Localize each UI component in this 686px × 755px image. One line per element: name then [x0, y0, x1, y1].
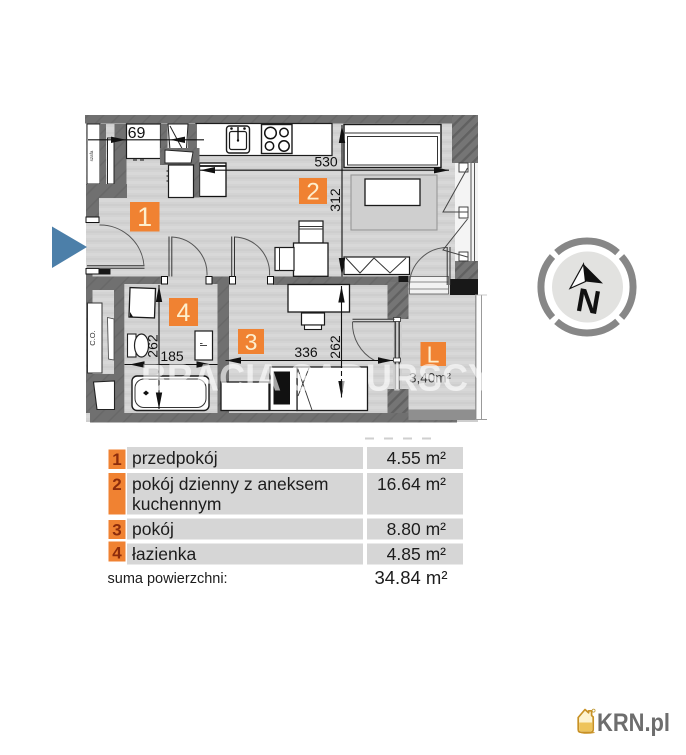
svg-text:2: 2 [112, 475, 121, 494]
svg-text:3: 3 [112, 521, 121, 540]
svg-text:pokój: pokój [132, 519, 174, 539]
svg-text:1: 1 [112, 450, 121, 469]
svg-text:262: 262 [145, 334, 161, 358]
svg-text:2: 2 [306, 179, 319, 206]
svg-text:suma powierzchni:: suma powierzchni: [108, 571, 228, 587]
svg-text:4: 4 [177, 299, 191, 327]
svg-text:BRACIA SADURSCY: BRACIA SADURSCY [141, 358, 492, 400]
svg-text:szafa: szafa [89, 150, 94, 161]
svg-text:262: 262 [327, 335, 343, 359]
svg-text:4: 4 [112, 544, 122, 563]
svg-text:4.85 m²: 4.85 m² [387, 544, 446, 564]
svg-text:KRN.pl: KRN.pl [597, 709, 670, 737]
svg-text:16.64 m²: 16.64 m² [377, 474, 446, 494]
svg-text:pokój dzienny z aneksem: pokój dzienny z aneksem [132, 474, 329, 494]
svg-text:34.84 m²: 34.84 m² [374, 567, 447, 588]
svg-text:4.55 m²: 4.55 m² [387, 448, 446, 468]
svg-text:kuchennym: kuchennym [132, 494, 222, 514]
svg-text:1: 1 [137, 202, 152, 232]
svg-text:przedpokój: przedpokój [132, 448, 218, 468]
svg-text:3: 3 [245, 329, 258, 355]
svg-text:530: 530 [314, 154, 338, 170]
svg-text:C.O.: C.O. [88, 330, 97, 345]
svg-text:łazienka: łazienka [132, 544, 196, 564]
svg-text:8.80 m²: 8.80 m² [387, 519, 446, 539]
svg-text:312: 312 [327, 188, 343, 212]
svg-text:69: 69 [128, 125, 146, 142]
